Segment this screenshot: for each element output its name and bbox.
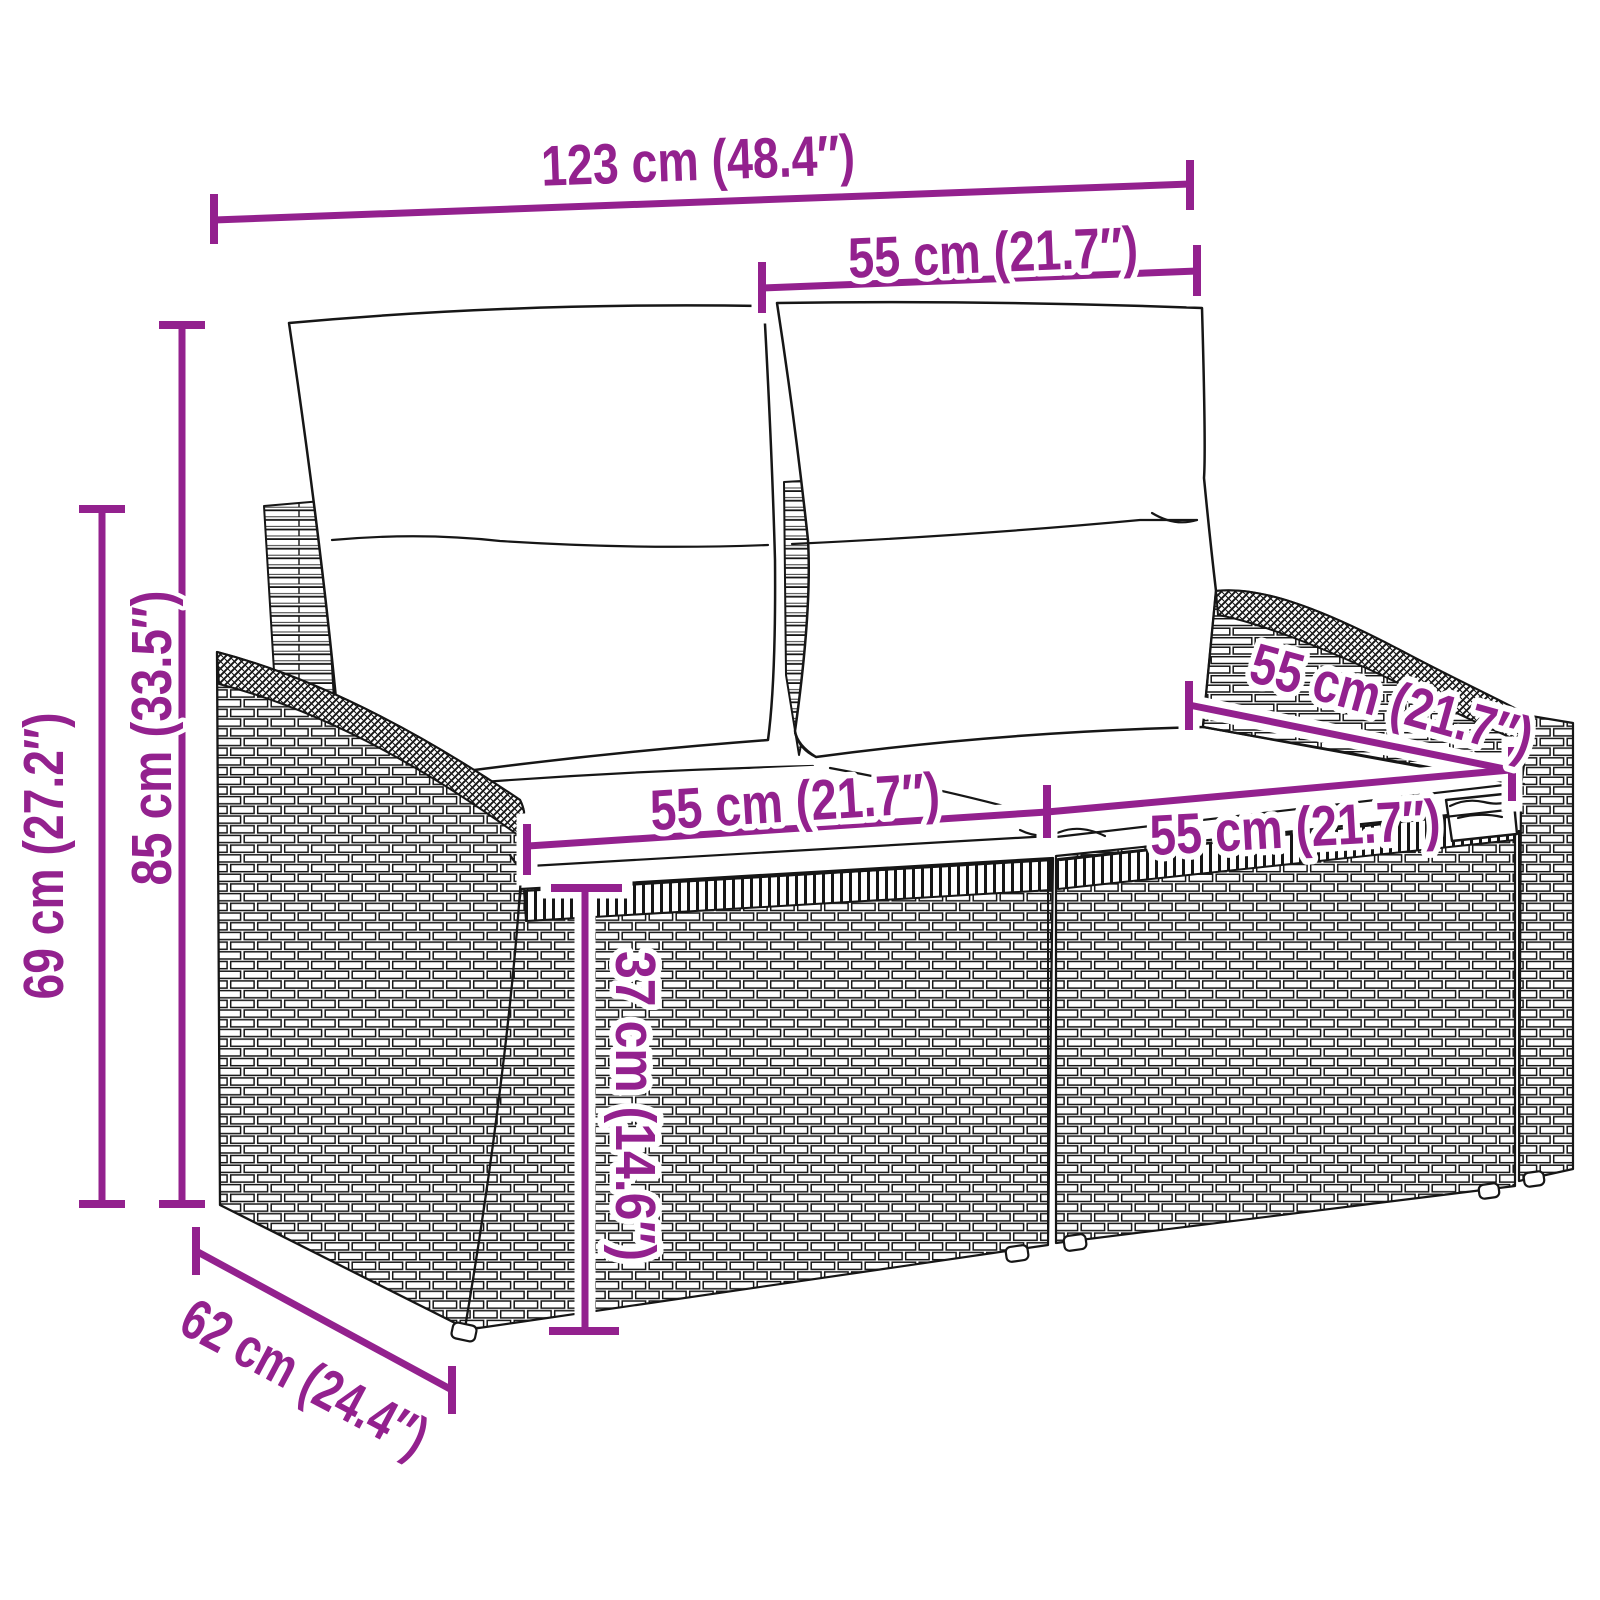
svg-text:55 cm (21.7″): 55 cm (21.7″) bbox=[847, 215, 1139, 291]
svg-text:69 cm (27.2″): 69 cm (27.2″) bbox=[12, 713, 76, 1000]
svg-text:85 cm (33.5″): 85 cm (33.5″) bbox=[120, 591, 184, 886]
svg-text:37 cm (14.6″): 37 cm (14.6″) bbox=[603, 951, 667, 1261]
svg-text:123 cm (48.4″): 123 cm (48.4″) bbox=[540, 123, 856, 198]
